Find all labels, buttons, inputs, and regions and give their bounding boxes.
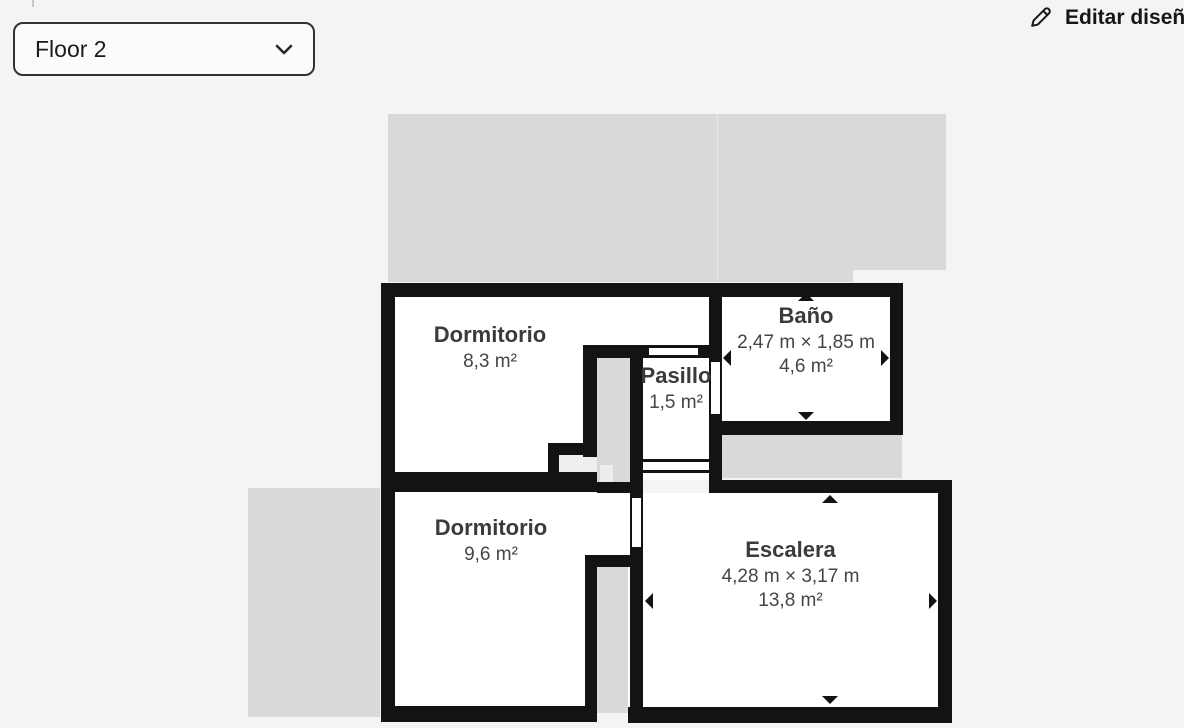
floor-plan-editor: Dormitorio 8,3 m² Baño 2,47 m × 1,85 m 4…: [0, 0, 1184, 728]
wall-escalera-right: [938, 480, 952, 723]
wall-bano-bottom: [709, 421, 903, 435]
floor-selector-value: Floor 2: [35, 36, 107, 63]
wall-bano-right: [890, 283, 903, 435]
shaft-upper: [597, 357, 630, 482]
bano-resize-right-icon[interactable]: [881, 350, 889, 366]
pocket-a: [559, 455, 597, 472]
wall-jog-v: [548, 443, 559, 472]
slab-left: [248, 488, 380, 717]
slab-below-bano: [722, 435, 902, 478]
pocket-b: [600, 465, 613, 482]
room-bano[interactable]: [722, 296, 890, 421]
wall-dorm1-right: [583, 345, 597, 457]
escalera-resize-right-icon[interactable]: [929, 593, 937, 609]
escalera-resize-down-icon[interactable]: [822, 696, 838, 704]
bano-resize-down-icon[interactable]: [798, 412, 814, 420]
slab-top: [388, 114, 946, 270]
wall-left: [381, 283, 395, 722]
wall-bottom-left: [381, 706, 597, 722]
edit-design-label: Editar diseño: [1065, 6, 1184, 30]
edit-design-button[interactable]: Editar diseño: [1028, 5, 1184, 30]
slab-top-step: [388, 270, 853, 282]
wall-bottom-right: [628, 707, 952, 723]
escalera-resize-left-icon[interactable]: [645, 593, 653, 609]
door-dormitorio2-escalera[interactable]: [632, 498, 641, 547]
shaft-lower: [597, 567, 628, 713]
wall-top: [381, 283, 903, 297]
room-escalera[interactable]: [643, 493, 938, 707]
escalera-resize-up-icon[interactable]: [822, 495, 838, 503]
floor-selector[interactable]: Floor 2: [13, 22, 315, 76]
chevron-down-icon: [271, 36, 297, 62]
wall-escalera-top: [709, 480, 952, 493]
pencil-icon: [1028, 5, 1053, 30]
wall-shaft-left: [585, 557, 597, 712]
slab-seam: [717, 114, 718, 281]
bano-resize-up-icon[interactable]: [798, 293, 814, 301]
bano-resize-left-icon[interactable]: [723, 350, 731, 366]
door-pasillo-bano[interactable]: [711, 362, 720, 414]
door-pasillo-bottom[interactable]: [643, 459, 709, 473]
wall-dorm-divider: [381, 472, 597, 492]
cursor-artifact: [32, 0, 34, 7]
door-pasillo-top[interactable]: [647, 346, 700, 357]
